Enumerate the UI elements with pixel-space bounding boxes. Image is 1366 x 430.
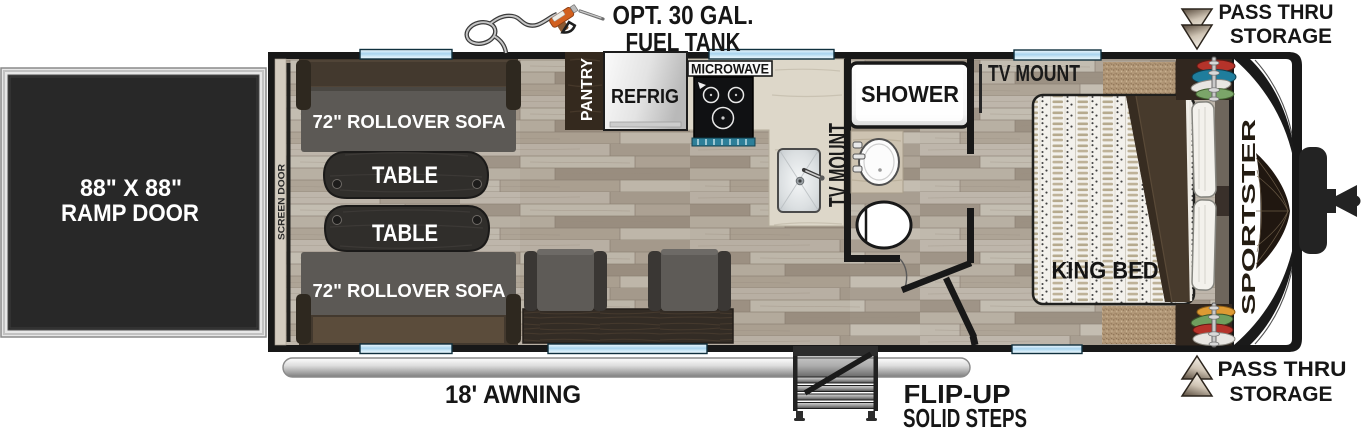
svg-text:TV MOUNT: TV MOUNT [988,60,1080,86]
svg-text:PANTRY: PANTRY [579,58,596,121]
svg-text:SHOWER: SHOWER [861,81,959,107]
svg-text:PASS THRU: PASS THRU [1219,1,1334,24]
svg-text:KING BED: KING BED [1052,258,1159,285]
svg-text:SCREEN DOOR: SCREEN DOOR [277,164,288,240]
svg-text:STORAGE: STORAGE [1230,25,1332,48]
svg-text:TABLE: TABLE [372,162,438,189]
svg-text:RAMP DOOR: RAMP DOOR [61,200,199,227]
svg-text:REFRIG: REFRIG [611,86,679,108]
svg-text:72" ROLLOVER SOFA: 72" ROLLOVER SOFA [313,112,506,132]
svg-text:TABLE: TABLE [372,220,438,247]
svg-text:88" X 88": 88" X 88" [80,175,182,202]
svg-text:18' AWNING: 18' AWNING [445,381,581,409]
svg-text:OPT. 30 GAL.: OPT. 30 GAL. [613,2,754,30]
svg-text:72" ROLLOVER SOFA: 72" ROLLOVER SOFA [313,281,506,301]
svg-text:PASS THRU: PASS THRU [1218,358,1347,381]
svg-text:MICROWAVE: MICROWAVE [691,62,769,77]
svg-text:STORAGE: STORAGE [1230,383,1333,406]
svg-text:SOLID STEPS: SOLID STEPS [903,403,1027,430]
svg-text:SPORTSTER: SPORTSTER [1238,119,1259,315]
svg-text:FUEL TANK: FUEL TANK [626,29,741,57]
